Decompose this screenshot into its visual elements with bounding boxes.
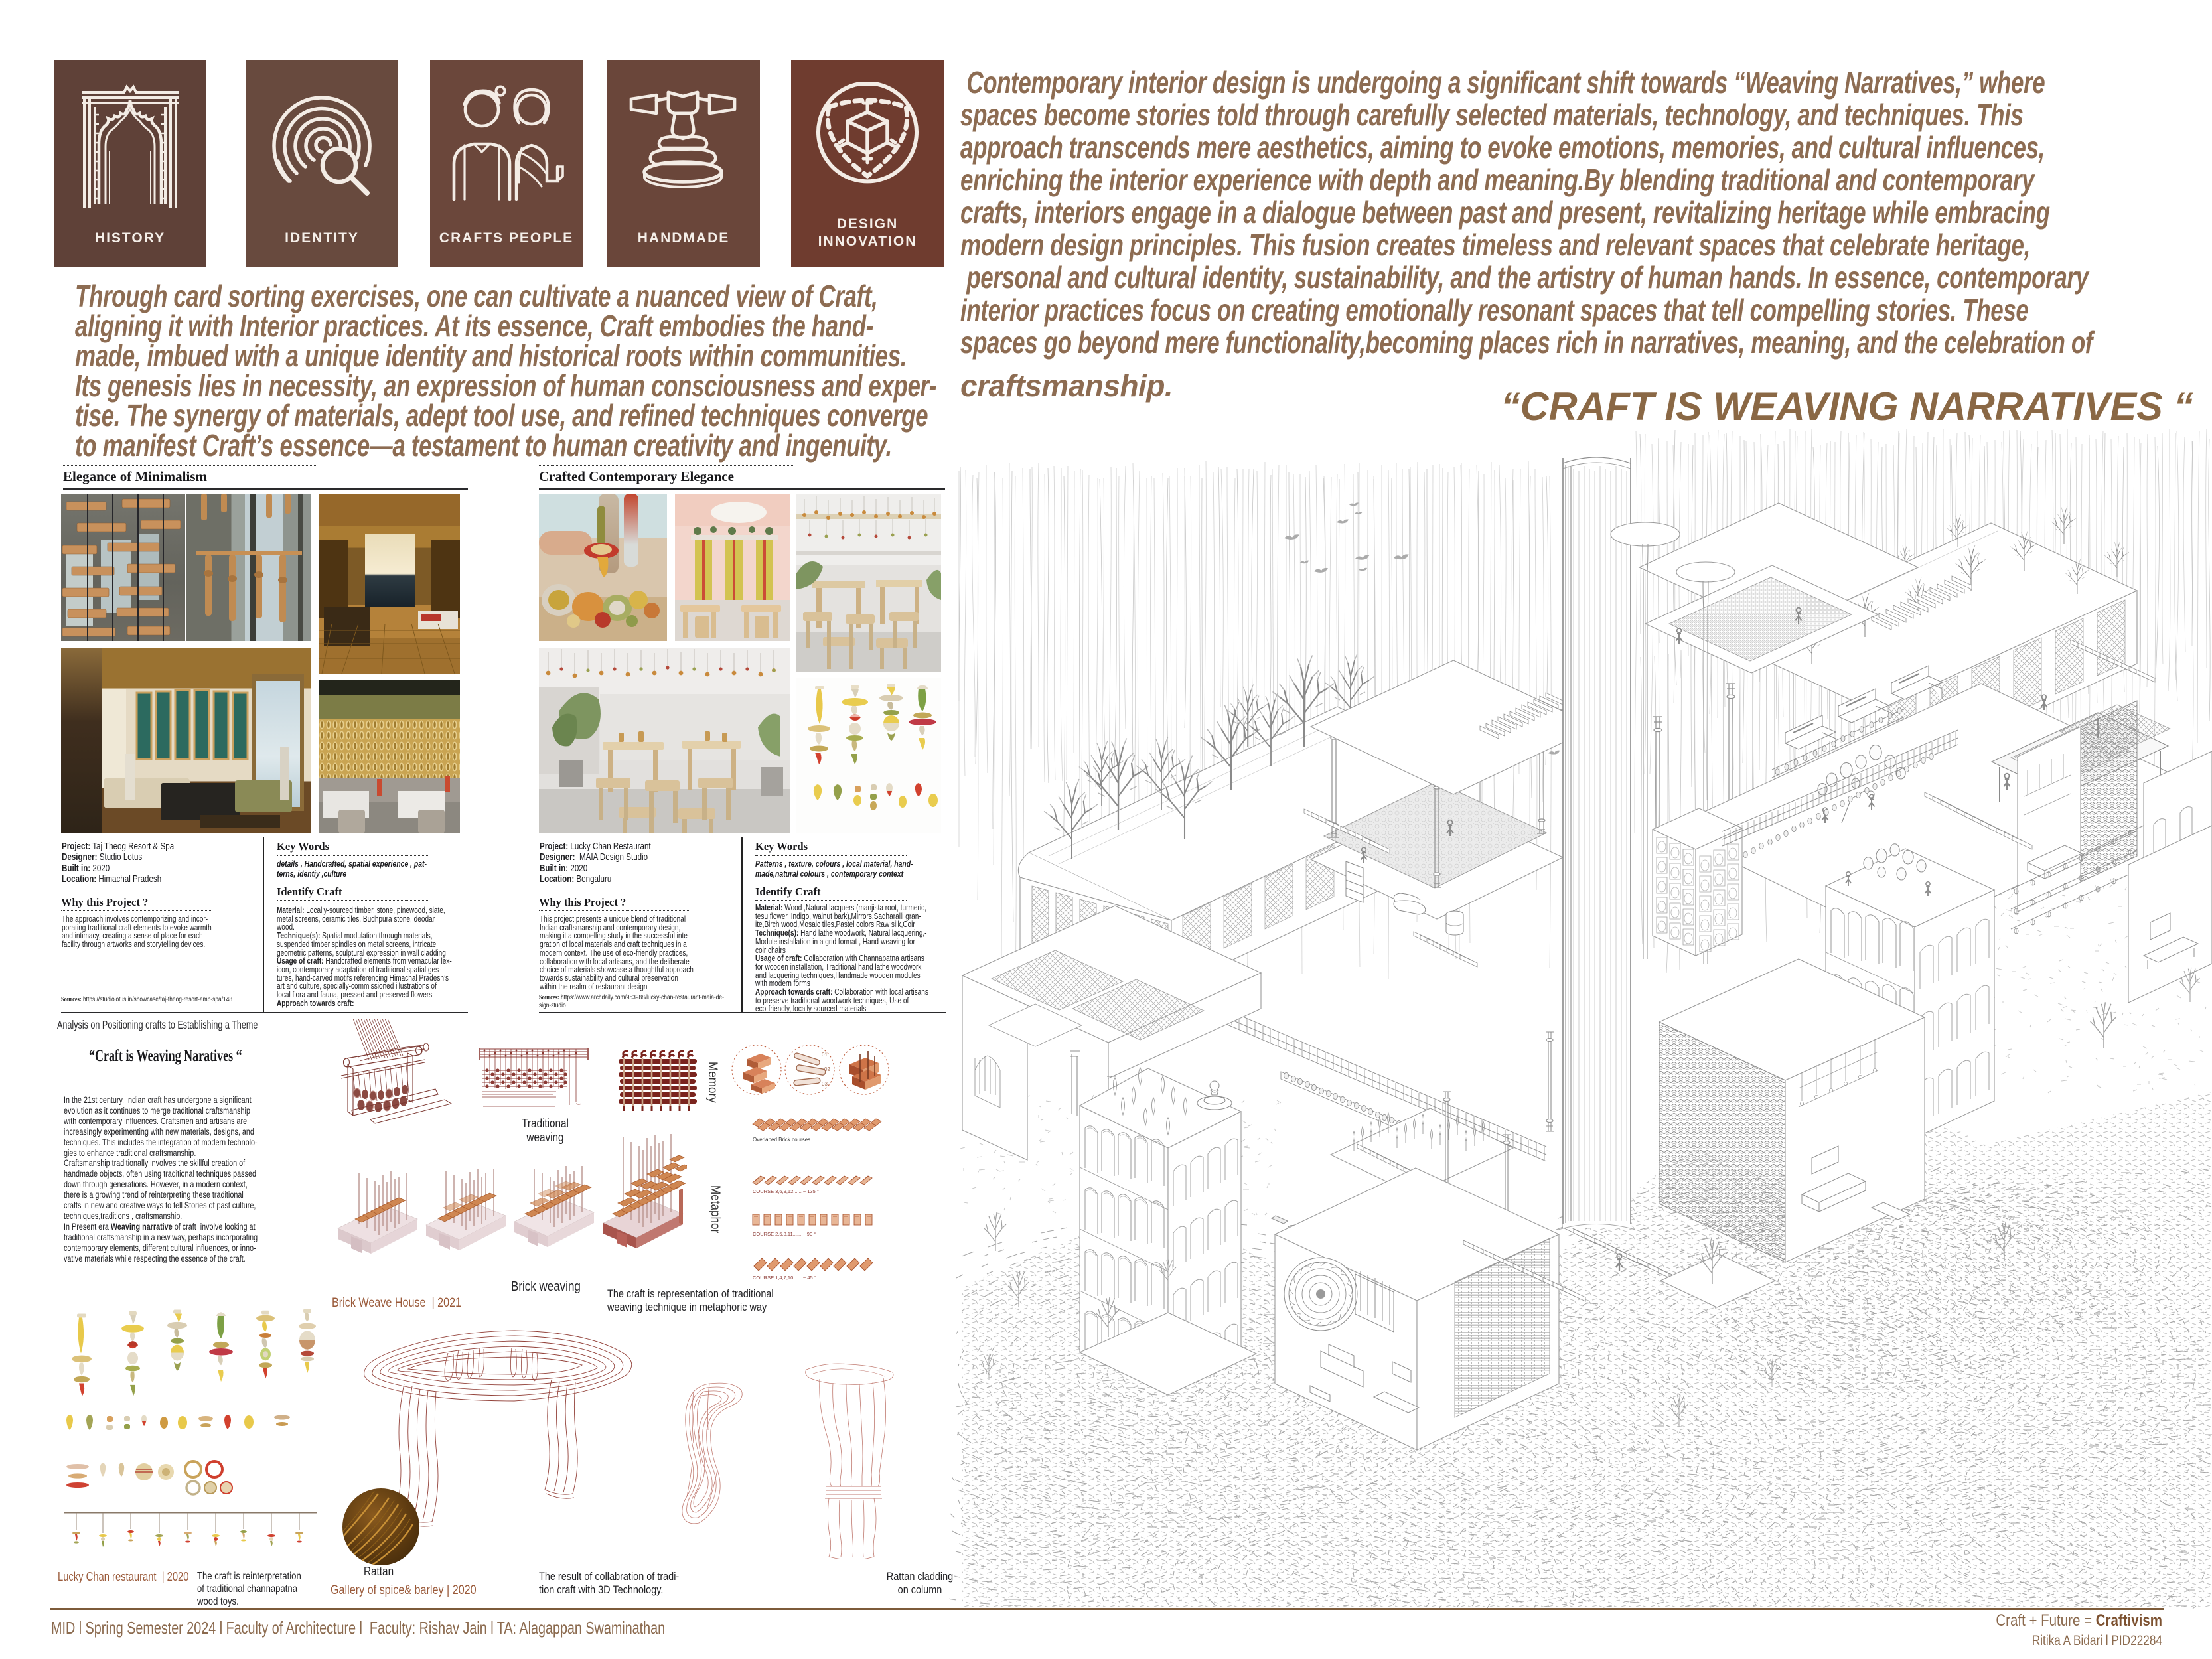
svg-text:COURSE 3,6,9,12...... ~ 135 °: COURSE 3,6,9,12...... ~ 135 ° (753, 1189, 819, 1194)
svg-text:01: 01 (822, 1052, 828, 1058)
svg-text:02: 02 (824, 1066, 830, 1072)
svg-text:03: 03 (822, 1081, 828, 1087)
svg-text:COURSE 1,4,7,10...... ~ 45 °: COURSE 1,4,7,10...... ~ 45 ° (753, 1275, 816, 1281)
svg-text:Overlaped Brick courses: Overlaped Brick courses (753, 1137, 810, 1143)
svg-text:COURSE 2,5,8,11...... ~ 90 °: COURSE 2,5,8,11...... ~ 90 ° (753, 1231, 816, 1237)
